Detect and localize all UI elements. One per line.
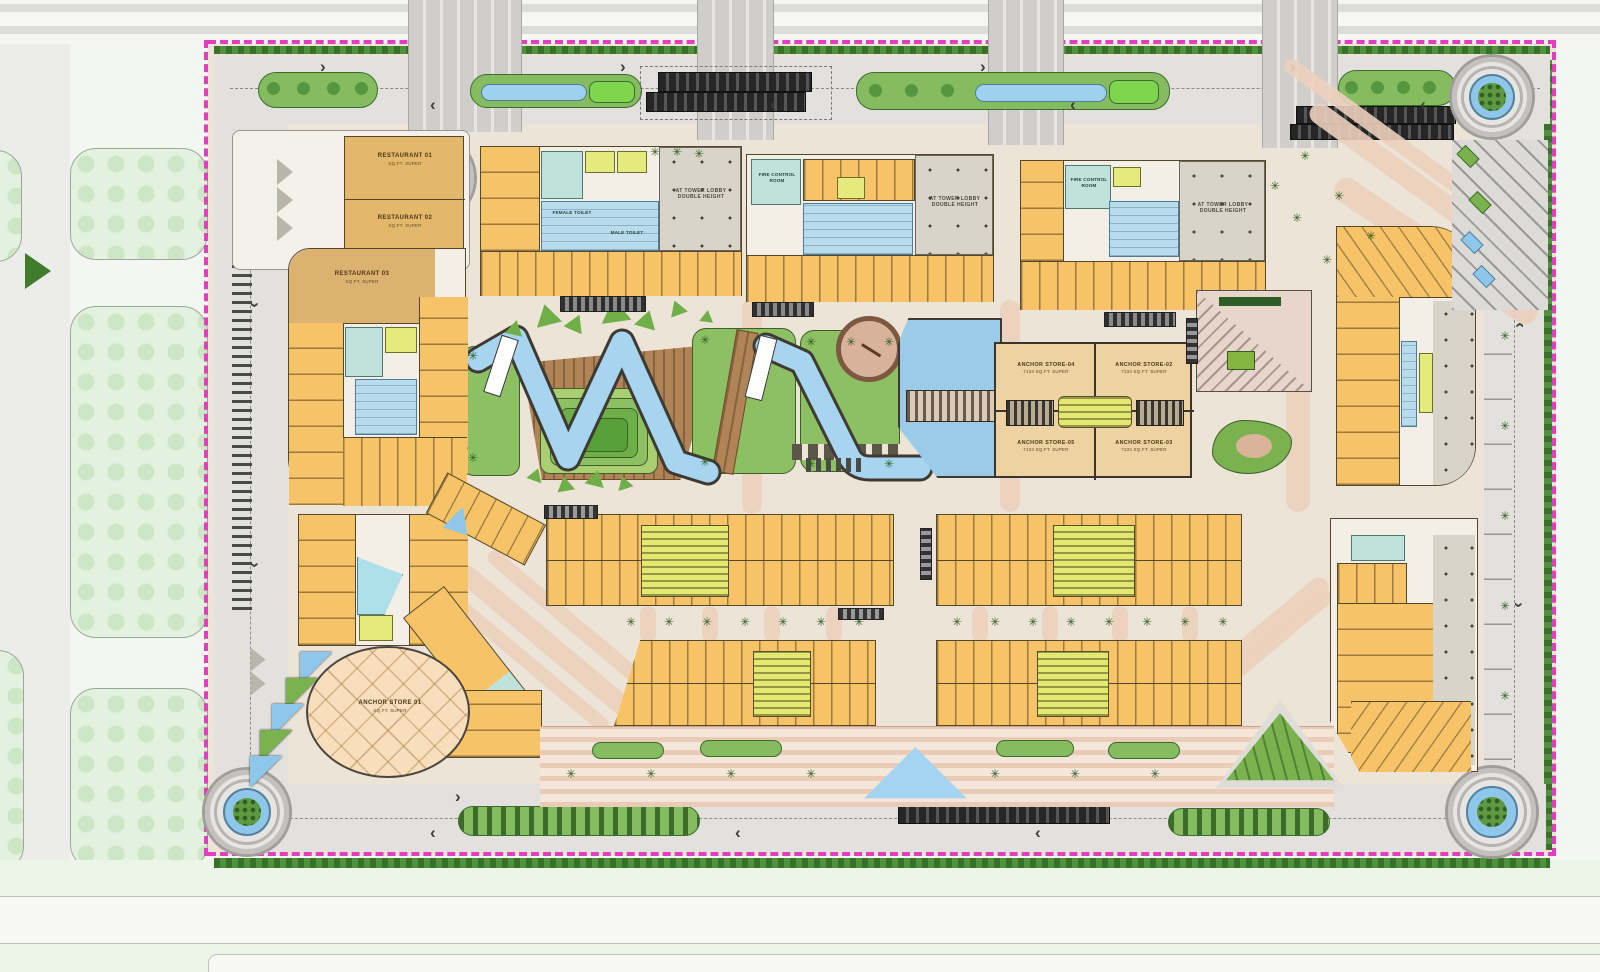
palm-tree-icon: ✳: [1218, 616, 1228, 628]
tree-icon: [327, 82, 340, 95]
tree-icon: [941, 84, 954, 97]
median-planter: [458, 806, 700, 836]
palm-tree-icon: ✳: [884, 458, 894, 470]
median-planter: [258, 72, 378, 108]
walkway: [1042, 606, 1058, 642]
roundabout: [1452, 57, 1532, 137]
palm-tree-icon: ✳: [990, 768, 1000, 780]
anchor-store-04-label: ANCHOR STORE-04 7134 SQ.FT. SUPER: [1000, 362, 1092, 374]
palm-tree-icon: ✳: [1500, 600, 1510, 612]
traffic-arrow-icon: ›: [1514, 602, 1524, 608]
bench: [1186, 318, 1198, 364]
fire-control-room: FIRE CONTROL ROOM: [1065, 165, 1111, 209]
unit-column: [481, 147, 540, 251]
toilet-block: [803, 203, 913, 255]
palm-tree-icon: ✳: [700, 334, 710, 346]
outside-bottom-road: [0, 896, 1600, 944]
palm-tree-icon: ✳: [468, 350, 478, 362]
restaurant-03-zone: RESTAURANT 03 SQ.FT. SUPER: [289, 249, 435, 324]
outside-bottom-road: [208, 954, 1600, 972]
loading-dock: [752, 302, 814, 317]
promenade-planter: [1108, 742, 1180, 759]
escalator-core: [1037, 651, 1109, 717]
unit-row: [747, 255, 993, 302]
escalator-bank: [1401, 341, 1417, 427]
palm-tree-icon: ✳: [1150, 768, 1160, 780]
promenade-planter: [700, 740, 782, 757]
palm-tree-icon: ✳: [1028, 616, 1038, 628]
palm-tree-icon: ✳: [806, 458, 816, 470]
tree-icon: [1371, 81, 1384, 94]
lift-core: [385, 327, 417, 353]
traffic-arrow-icon: ›: [980, 62, 986, 72]
anchor-store-02-label: ANCHOR STORE-02 7134 SQ.FT. SUPER: [1098, 362, 1190, 374]
fire-control-room-label: FIRE CONTROL ROOM: [1066, 177, 1112, 188]
palm-tree-icon: ✳: [1334, 190, 1344, 202]
access-road: [408, 0, 522, 132]
median-lawn: [1109, 80, 1159, 104]
unit-column: [1337, 297, 1400, 485]
median-planter: [470, 74, 642, 108]
palm-tree-icon: ✳: [650, 146, 660, 158]
palm-tree-icon: ✳: [1292, 212, 1302, 224]
toilet-block: FEMALE TOILET MALE TOILET: [541, 201, 659, 251]
palm-tree-icon: ✳: [1322, 254, 1332, 266]
palm-tree-icon: ✳: [1070, 768, 1080, 780]
anchor-stores-building: ANCHOR STORE-04 7134 SQ.FT. SUPER ANCHOR…: [994, 342, 1192, 478]
hedge-strip: [214, 858, 1550, 868]
median-planter: [856, 72, 1170, 110]
lift-core: [1113, 167, 1141, 187]
palm-tree-icon: ✳: [1500, 690, 1510, 702]
male-toilet-label: MALE TOILET: [602, 230, 652, 236]
lift-core: [585, 151, 615, 173]
lift-core: [359, 615, 393, 641]
garden-curve: [1236, 434, 1272, 458]
lane-centerline: [250, 818, 1536, 819]
escalator-bank: [1136, 400, 1184, 426]
palm-tree-icon: ✳: [1142, 616, 1152, 628]
tree-icon: [267, 82, 280, 95]
tower-lobby-label: AT TOWER LOBBYDOUBLE HEIGHT: [660, 188, 742, 201]
palm-tree-icon: ✳: [846, 336, 856, 348]
promenade-planter: [592, 742, 664, 759]
tree-icon: [355, 82, 368, 95]
site-boundary: [208, 852, 1556, 856]
outside-green-block: [0, 650, 24, 872]
palm-tree-icon: ✳: [1500, 420, 1510, 432]
terrace-step: [250, 756, 284, 786]
traffic-arrow-icon: ‹: [735, 828, 741, 838]
palm-tree-icon: ✳: [1366, 230, 1376, 242]
tower-block-a: FEMALE TOILET MALE TOILET AT TOWER LOBBY…: [480, 146, 742, 296]
median-lawn: [589, 81, 635, 103]
restaurant-03-label: RESTAURANT 03 SQ.FT. SUPER: [289, 271, 435, 284]
tree-icon: [869, 84, 882, 97]
tower-lobby-label: AT TOWER LOBBYDOUBLE HEIGHT: [1180, 202, 1266, 215]
walkway: [972, 606, 988, 642]
escalator-core: [1351, 535, 1405, 561]
tower-block-b: FIRE CONTROL ROOM AT TOWER LOBBYDOUBLE H…: [746, 154, 994, 302]
escalator-bank: [1006, 400, 1054, 426]
roundabout-green: [1478, 83, 1505, 110]
palm-tree-icon: ✳: [646, 768, 656, 780]
fire-control-room-label: FIRE CONTROL ROOM: [752, 172, 802, 183]
unit-row: [1337, 563, 1407, 605]
outside-top-lane: [0, 26, 1600, 34]
outside-green-block: [70, 148, 208, 260]
palm-tree-icon: ✳: [1066, 616, 1076, 628]
rumble-strip: [658, 72, 812, 92]
tower-lobby: AT TOWER LOBBYDOUBLE HEIGHT: [1179, 161, 1265, 261]
traffic-arrow-icon: ›: [250, 562, 260, 568]
escalator-core: [1053, 525, 1135, 597]
palm-tree-icon: ✳: [816, 616, 826, 628]
retail-row: [546, 514, 894, 606]
unit-column: [1021, 161, 1064, 261]
palm-tree-icon: ✳: [664, 616, 674, 628]
amphitheatre: [1196, 290, 1312, 392]
party-wall: [345, 199, 465, 200]
amphitheatre-steps: [1197, 291, 1311, 391]
palm-tree-icon: ✳: [1104, 616, 1114, 628]
loading-dock: [1104, 312, 1176, 327]
palm-tree-icon: ✳: [694, 148, 704, 160]
fire-control-room: FIRE CONTROL ROOM: [751, 159, 801, 205]
traffic-arrow-icon: ‹: [430, 100, 436, 110]
tree-icon: [1397, 81, 1410, 94]
unit-row: [481, 251, 741, 296]
amphitheatre-screen: [1219, 297, 1281, 306]
promenade-planter: [996, 740, 1074, 757]
tower-block-c: FIRE CONTROL ROOM AT TOWER LOBBYDOUBLE H…: [1020, 160, 1266, 310]
palm-tree-icon: ✳: [700, 456, 710, 468]
stage: [1227, 351, 1255, 370]
unit-column: [289, 323, 344, 505]
roundabout-green: [1477, 797, 1507, 827]
lift-core: [1419, 353, 1433, 413]
rumble-strip: [646, 92, 806, 112]
outside-green-block: [70, 306, 208, 638]
anchor-store-03-label: ANCHOR STORE-03 7134 SQ.FT. SUPER: [1098, 440, 1190, 452]
median-planter: [1338, 70, 1456, 106]
travelator-core: [1058, 396, 1132, 428]
toilet-core: [345, 327, 383, 377]
palm-tree-icon: ✳: [990, 616, 1000, 628]
traffic-arrow-icon: ›: [250, 302, 260, 308]
toilet-block: [1109, 201, 1179, 257]
palm-tree-icon: ✳: [468, 452, 478, 464]
angled-units: [1351, 701, 1471, 772]
site-boundary: [204, 40, 208, 856]
traffic-arrow-icon: ‹: [1070, 100, 1076, 110]
outside-top-lane: [0, 4, 1600, 12]
palm-tree-icon: ✳: [1500, 330, 1510, 342]
bench: [544, 505, 598, 519]
bench: [920, 528, 932, 580]
pier: [906, 390, 1000, 422]
tree-icon: [297, 82, 310, 95]
tower-lobby: AT TOWER LOBBYDOUBLE HEIGHT: [659, 147, 741, 251]
atrium: [1433, 301, 1475, 485]
traffic-arrow-icon: ›: [455, 792, 461, 802]
restaurant-02-label: RESTAURANT 02 SQ.FT. SUPER: [345, 215, 465, 228]
palm-tree-icon: ✳: [952, 616, 962, 628]
retail-row: [614, 640, 876, 726]
median-pond: [975, 84, 1107, 102]
female-toilet-label: FEMALE TOILET: [544, 210, 600, 216]
escalator-core: [753, 651, 811, 717]
palm-tree-icon: ✳: [702, 616, 712, 628]
palm-tree-icon: ✳: [626, 616, 636, 628]
median-planter: [1168, 808, 1330, 836]
roundabout: [1448, 768, 1536, 856]
palm-tree-icon: ✳: [566, 768, 576, 780]
service-room: [541, 151, 583, 199]
palm-tree-icon: ✳: [1270, 180, 1280, 192]
east-retail-building-south: [1330, 518, 1478, 772]
retail-row: [936, 514, 1242, 606]
anchor-store-01-label: ANCHOR STORE 01 SQ.FT. SUPER: [320, 700, 460, 713]
median-pond: [481, 84, 587, 101]
restaurant-01-02-building: RESTAURANT 01 SQ.FT. SUPER RESTAURANT 02…: [344, 136, 464, 262]
lift-core: [837, 177, 865, 199]
pool-wedge: [357, 557, 403, 615]
tower-lobby: AT TOWER LOBBYDOUBLE HEIGHT: [915, 155, 993, 255]
row-spine: [615, 683, 875, 684]
master-plan-canvas: › › › › ‹ ‹ ‹ ‹ › › › ‹ ‹ ‹ › › › ›: [0, 0, 1600, 972]
bench: [838, 608, 884, 620]
restaurant-01-label: RESTAURANT 01 SQ.FT. SUPER: [345, 153, 465, 166]
unit-column: [299, 515, 356, 645]
traffic-arrow-icon: ›: [620, 62, 626, 72]
outside-green-block: [0, 150, 22, 262]
tree-icon: [905, 84, 918, 97]
lift-core: [617, 151, 647, 173]
traffic-arrow-icon: ‹: [1420, 100, 1426, 110]
palm-tree-icon: ✳: [884, 336, 894, 348]
anchor-store-05-label: ANCHOR STORE-05 7134 SQ.FT. SUPER: [1000, 440, 1092, 452]
outside-green-block: [70, 688, 208, 870]
retail-row: [936, 640, 1242, 726]
traffic-arrow-icon: ›: [320, 62, 326, 72]
palm-tree-icon: ✳: [740, 616, 750, 628]
loading-dock: [560, 296, 646, 312]
palm-tree-icon: ✳: [672, 146, 682, 158]
toilet-block: [355, 379, 417, 435]
west-retail-building: RESTAURANT 03 SQ.FT. SUPER: [288, 248, 466, 504]
palm-tree-icon: ✳: [778, 616, 788, 628]
palm-tree-icon: ✳: [806, 336, 816, 348]
walkway: [1112, 606, 1128, 642]
palm-tree-icon: ✳: [1500, 510, 1510, 522]
walkway: [640, 606, 656, 642]
palm-tree-icon: ✳: [1180, 616, 1190, 628]
palm-tree-icon: ✳: [1300, 150, 1310, 162]
traffic-arrow-icon: ‹: [430, 828, 436, 838]
site-boundary: [1552, 40, 1556, 856]
parking-bay-strip: [1452, 140, 1548, 310]
tree-icon: [1345, 81, 1358, 94]
tree-icon: [1423, 81, 1436, 94]
traffic-arrow-icon: ‹: [770, 100, 776, 110]
escalator-core: [641, 525, 729, 597]
palm-tree-icon: ✳: [806, 768, 816, 780]
traffic-arrow-icon: ‹: [1035, 828, 1041, 838]
palm-tree-icon: ✳: [726, 768, 736, 780]
tower-lobby-label: AT TOWER LOBBYDOUBLE HEIGHT: [916, 196, 994, 209]
